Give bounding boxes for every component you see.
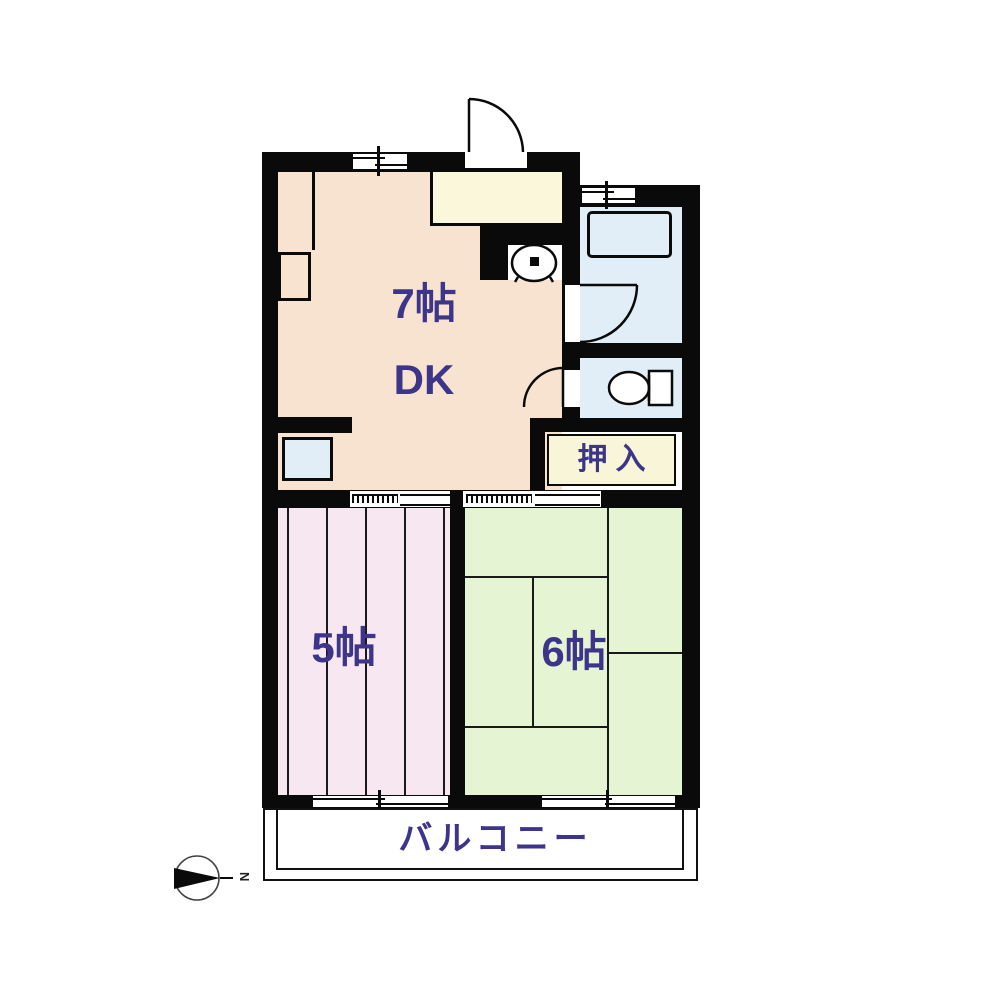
sliding-door-track xyxy=(352,494,398,503)
dk-window xyxy=(353,154,407,169)
floor-board-line xyxy=(443,508,445,795)
top-wall xyxy=(262,152,580,172)
kitchen-counter xyxy=(430,172,562,226)
dk-type-label: DK xyxy=(354,358,494,402)
balcony-label: バルコニー xyxy=(293,822,698,858)
washing-machine-space xyxy=(282,437,333,481)
toilet-doorway xyxy=(562,370,580,407)
left-wall xyxy=(262,152,278,808)
dk-left-wall-stub xyxy=(262,417,352,433)
sliding-door-track xyxy=(466,494,532,503)
tatami-line xyxy=(465,576,609,578)
north-compass-icon: N xyxy=(174,856,252,900)
window-pane-line xyxy=(582,191,614,193)
bathtub xyxy=(587,211,672,258)
bathroom-window xyxy=(582,188,635,203)
bathroom-doorway xyxy=(565,285,580,342)
dk-size-label: 7帖 xyxy=(354,282,494,326)
window-pane-line xyxy=(353,157,385,159)
storage-partition-line xyxy=(312,172,315,250)
closet-label: 押入 xyxy=(546,444,677,476)
storage-box xyxy=(278,252,311,301)
tatami-room-label: 6帖 xyxy=(504,630,644,674)
entrance-doorway xyxy=(465,152,527,168)
washbasin-nook-wall-side xyxy=(480,225,508,280)
western-room-label: 5帖 xyxy=(274,626,414,670)
sliding-door-panel xyxy=(400,494,450,506)
window-center-tick xyxy=(605,181,608,209)
window-pane-line xyxy=(542,798,612,800)
north-label: N xyxy=(237,872,252,881)
sliding-door-panel xyxy=(535,494,600,506)
bath-toilet-wall xyxy=(562,343,686,358)
window-pane-line xyxy=(376,803,448,805)
entrance-door-swing xyxy=(469,99,523,152)
floor-plan: N 7帖 DK 5帖 6帖 押入 バルコニー xyxy=(0,0,1000,1000)
tatami-line xyxy=(465,726,609,728)
room-divider-wall xyxy=(450,490,465,808)
window-center-tick xyxy=(377,146,380,176)
window-pane-line xyxy=(313,798,385,800)
window-pane-line xyxy=(605,803,675,805)
washbasin-nook xyxy=(508,245,562,280)
toilet-room-floor xyxy=(580,358,684,418)
closet-top-wall xyxy=(530,418,700,432)
